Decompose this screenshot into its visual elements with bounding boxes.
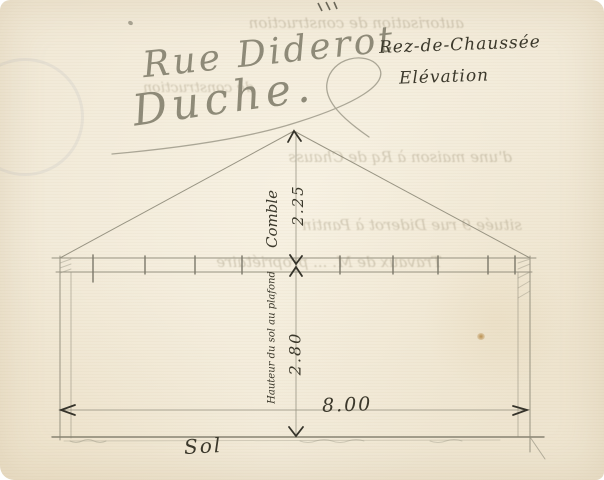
roof-left-slope: [60, 131, 294, 258]
room-height-dimension: 2.80: [286, 323, 305, 385]
corner-hatch: [60, 259, 530, 298]
ground-label: Sol: [183, 433, 222, 459]
drawing-title-view: Elévation: [399, 65, 490, 88]
band-ticks: [93, 255, 515, 282]
top-edge-ink-marks: [318, 2, 337, 11]
room-height-label: Hauteur du sol au plafond: [267, 270, 278, 406]
attic-height-dimension: 2.25: [289, 175, 307, 235]
ground-line-2: [64, 440, 500, 441]
roof-right-slope: [294, 131, 530, 258]
corner-stray-line: [530, 437, 545, 459]
scanned-page: autorisation de construction de construc…: [0, 0, 604, 480]
paper-background: autorisation de construction de construc…: [0, 0, 604, 480]
width-dimension: 8.00: [322, 393, 373, 417]
attic-label: Comble: [263, 179, 281, 259]
